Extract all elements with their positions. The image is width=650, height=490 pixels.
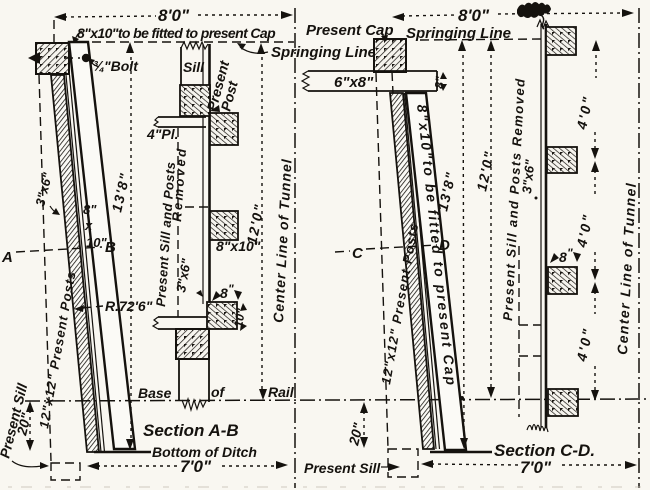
svg-text:8'0": 8'0" [458, 6, 490, 25]
svg-text:D: D [439, 237, 450, 254]
svg-text:4"Pl.: 4"Pl. [146, 126, 179, 142]
svg-text:": " [228, 282, 234, 296]
svg-text:B: B [105, 239, 116, 256]
svg-text:Present Cap: Present Cap [306, 22, 394, 39]
svg-text:C: C [352, 245, 364, 262]
svg-text:R.72'6": R.72'6" [105, 298, 153, 314]
svg-text:8"x10"to be fitted to present: 8"x10"to be fitted to present Cap [77, 25, 276, 41]
svg-text:Present Sill: Present Sill [304, 460, 381, 476]
svg-text:": " [567, 246, 573, 260]
svg-text:6"x8": 6"x8" [334, 74, 374, 91]
svg-text:8: 8 [220, 285, 228, 301]
svg-text:7'0": 7'0" [520, 458, 552, 477]
svg-text:8": 8" [83, 202, 97, 217]
svg-text:Springing Line: Springing Line [271, 44, 376, 61]
svg-text:A: A [1, 249, 13, 266]
svg-text:"Bolt: "Bolt [104, 58, 139, 74]
svg-text:8: 8 [559, 249, 567, 265]
svg-text:7'0": 7'0" [180, 457, 212, 476]
svg-text:8"x10": 8"x10" [216, 238, 261, 254]
svg-text:x: x [84, 218, 93, 233]
svg-text:Section A-B: Section A-B [143, 421, 239, 440]
svg-text:of: of [211, 384, 226, 400]
svg-text:¾: ¾ [93, 58, 105, 74]
svg-text:8'0": 8'0" [158, 6, 190, 25]
svg-text:Base: Base [138, 385, 172, 401]
svg-text:Rail: Rail [268, 384, 295, 400]
svg-text:Sill: Sill [183, 59, 205, 75]
